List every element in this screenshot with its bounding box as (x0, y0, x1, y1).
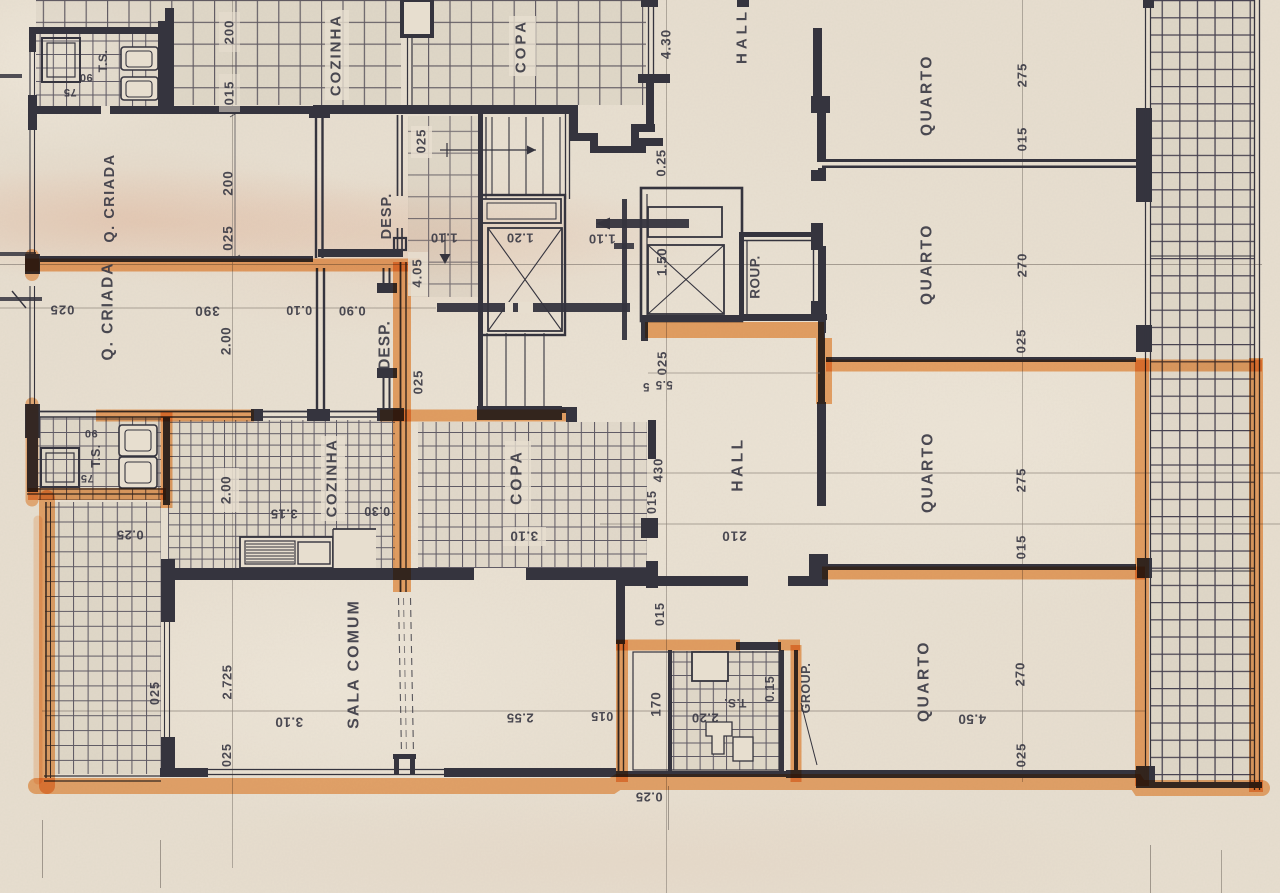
svg-text:0.25: 0.25 (654, 149, 669, 176)
svg-text:0.25: 0.25 (116, 528, 143, 543)
svg-text:QUARTO: QUARTO (916, 640, 933, 722)
svg-text:015: 015 (1014, 535, 1029, 560)
svg-text:200: 200 (222, 20, 237, 45)
svg-text:75: 75 (63, 86, 76, 98)
svg-text:275: 275 (1014, 468, 1029, 493)
svg-text:1.10: 1.10 (588, 232, 615, 247)
svg-text:ROUP.: ROUP. (748, 255, 763, 299)
svg-text:025: 025 (655, 351, 670, 376)
svg-text:1.20: 1.20 (506, 231, 533, 246)
svg-text:0.10: 0.10 (286, 303, 312, 317)
svg-text:T.S.: T.S. (96, 50, 110, 73)
svg-text:1.50: 1.50 (655, 248, 670, 276)
svg-text:015: 015 (222, 81, 237, 106)
svg-text:4.30: 4.30 (659, 29, 674, 59)
svg-text:0.30: 0.30 (364, 504, 390, 518)
svg-text:025: 025 (411, 370, 426, 395)
svg-text:025: 025 (414, 129, 429, 154)
svg-text:0.90: 0.90 (338, 304, 365, 319)
svg-text:3.10: 3.10 (510, 529, 538, 544)
svg-text:QUARTO: QUARTO (919, 54, 936, 136)
svg-text:2.55: 2.55 (506, 711, 533, 726)
svg-text:025: 025 (148, 681, 162, 705)
svg-text:DESP.: DESP. (379, 193, 395, 240)
svg-text:SALA COMUM: SALA COMUM (346, 599, 363, 729)
svg-text:T.S.: T.S. (89, 444, 103, 468)
svg-text:DESP.: DESP. (377, 320, 394, 370)
svg-text:3.10: 3.10 (275, 715, 303, 730)
svg-text:HALL: HALL (734, 8, 751, 64)
svg-text:0.25: 0.25 (635, 790, 662, 805)
svg-text:Q. CRIADA: Q. CRIADA (102, 153, 118, 242)
svg-text:210: 210 (721, 529, 747, 544)
svg-text:270: 270 (1013, 662, 1028, 687)
svg-text:3.15: 3.15 (270, 507, 297, 522)
svg-text:Q. CRIADA: Q. CRIADA (100, 262, 117, 361)
svg-text:270: 270 (1015, 253, 1030, 278)
svg-text:T.S.: T.S. (724, 696, 747, 710)
svg-text:90: 90 (84, 427, 97, 439)
svg-text:QUARTO: QUARTO (919, 223, 936, 305)
svg-text:015: 015 (645, 490, 659, 514)
svg-text:4.50: 4.50 (958, 712, 986, 727)
svg-text:025: 025 (221, 225, 236, 251)
svg-text:430: 430 (651, 458, 666, 483)
svg-text:025: 025 (50, 303, 75, 318)
svg-text:5.5: 5.5 (655, 378, 673, 390)
svg-text:0.15: 0.15 (763, 676, 777, 702)
svg-text:015: 015 (1015, 127, 1030, 152)
svg-text:COPA: COPA (513, 19, 530, 73)
svg-text:015: 015 (591, 709, 613, 723)
svg-text:HALL: HALL (730, 436, 747, 491)
svg-text:015: 015 (653, 602, 667, 626)
svg-text:COPA: COPA (509, 449, 526, 505)
svg-text:390: 390 (194, 304, 220, 319)
svg-text:2.00: 2.00 (219, 327, 234, 355)
svg-text:2.20: 2.20 (691, 711, 718, 726)
svg-text:5: 5 (642, 380, 649, 392)
svg-text:COZINHA: COZINHA (328, 14, 345, 96)
svg-text:2.725: 2.725 (220, 664, 235, 699)
svg-text:GROUP.: GROUP. (799, 663, 813, 714)
svg-text:QUARTO: QUARTO (920, 431, 937, 513)
svg-text:025: 025 (1014, 329, 1029, 354)
svg-text:170: 170 (649, 691, 664, 717)
svg-text:1.10: 1.10 (430, 231, 457, 246)
svg-text:COZINHA: COZINHA (324, 439, 341, 518)
svg-text:2.00: 2.00 (219, 476, 234, 504)
svg-text:75: 75 (80, 472, 93, 484)
svg-text:275: 275 (1015, 63, 1030, 88)
svg-text:90: 90 (79, 71, 92, 83)
svg-text:4.05: 4.05 (410, 258, 425, 287)
svg-text:200: 200 (221, 170, 236, 196)
svg-text:025: 025 (220, 743, 234, 767)
svg-text:025: 025 (1014, 743, 1029, 768)
